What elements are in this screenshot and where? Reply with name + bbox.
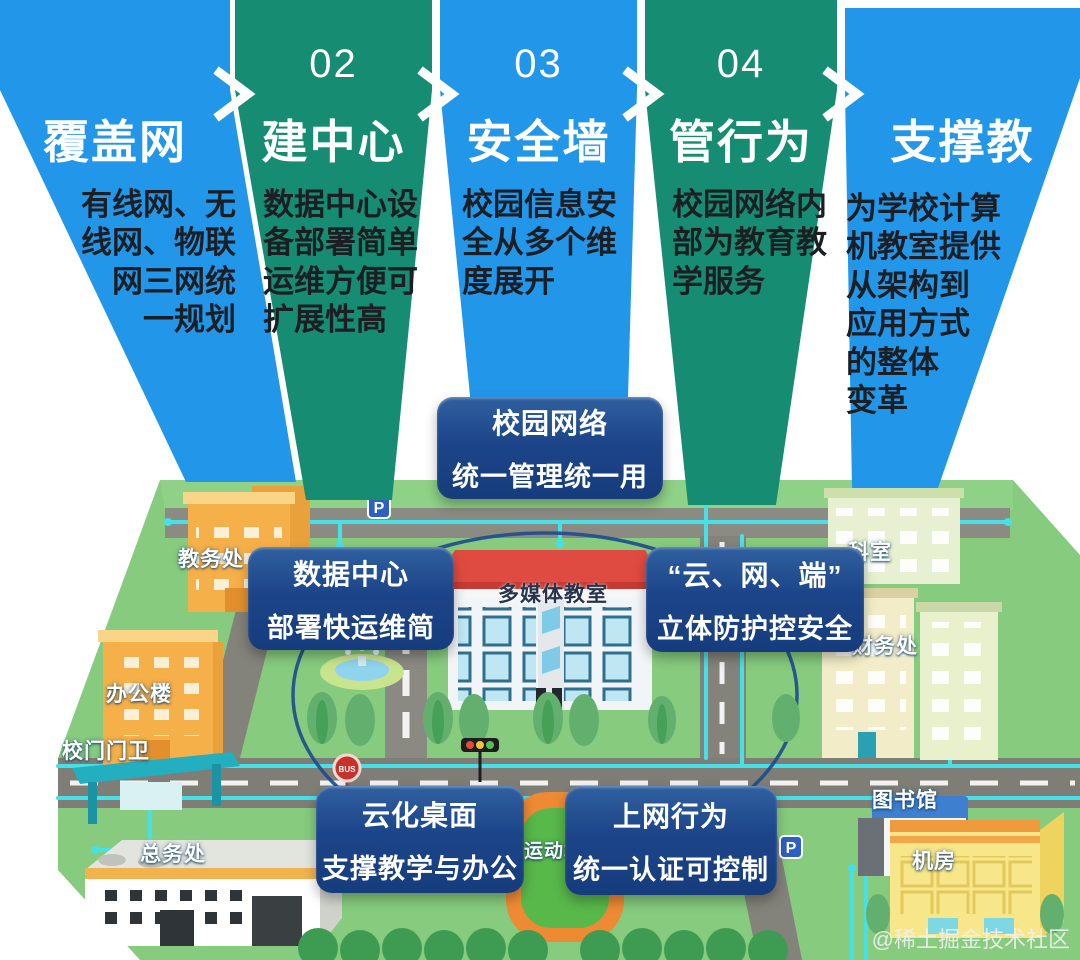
callout-data-center: 数据中心 部署快运维简 bbox=[248, 547, 454, 650]
callout-line1: “云、网、端” bbox=[667, 554, 842, 594]
step-desc-3: 校园信息安 全从多个维 度展开 bbox=[462, 186, 634, 301]
building-duomeiti bbox=[432, 550, 668, 710]
callout-line2: 统一认证可控制 bbox=[573, 848, 769, 887]
center-road bbox=[385, 640, 427, 758]
bus-icon: BUS bbox=[339, 765, 357, 774]
step-title-2: 建中心 bbox=[235, 106, 432, 172]
callout-line1: 云化桌面 bbox=[362, 794, 478, 834]
building-jifang bbox=[890, 812, 1064, 938]
callout-cloud-net-end: “云、网、端” 立体防护控安全 bbox=[646, 547, 864, 652]
parking-sign-bottom: P bbox=[780, 836, 802, 858]
map-label-bangonglou: 办公楼 bbox=[106, 678, 172, 708]
step-title-3: 安全墙 bbox=[440, 106, 637, 172]
step-desc-4: 校园网络内 部为教育教 学服务 bbox=[672, 186, 844, 301]
infographic-campus-network: BUS P P 02 03 04 bbox=[0, 0, 1080, 960]
map-label-xiaomen: 校门门卫 bbox=[62, 735, 150, 765]
map-label-duomeiti: 多媒体教室 bbox=[498, 578, 608, 608]
callout-cloud-desktop: 云化桌面 支撑教学与办公 bbox=[316, 786, 524, 893]
callout-line2: 支撑教学与办公 bbox=[322, 847, 518, 886]
map-label-zongwuchu: 总务处 bbox=[140, 838, 206, 868]
callout-line2: 统一管理统一用 bbox=[452, 455, 648, 494]
step-number-3: 03 bbox=[440, 42, 637, 87]
callout-line1: 数据中心 bbox=[293, 553, 409, 593]
callout-line2: 部署快运维简 bbox=[267, 606, 435, 645]
watermark: @稀土掘金技术社区 bbox=[872, 922, 1070, 954]
callout-net-behavior: 上网行为 统一认证可控制 bbox=[565, 786, 777, 895]
map-label-jiaowuchu: 教务处 bbox=[178, 543, 244, 573]
building-zongwuchu bbox=[85, 840, 342, 946]
callout-line2: 立体防护控安全 bbox=[657, 607, 853, 646]
step-desc-1: 有线网、无 线网、物联 网三网统 一规划 bbox=[40, 186, 236, 340]
step-number-4: 04 bbox=[645, 42, 837, 87]
callout-line1: 校园网络 bbox=[492, 402, 608, 442]
map-label-tushuguan: 图书馆 bbox=[872, 784, 938, 814]
step-title-4: 管行为 bbox=[645, 106, 837, 172]
step-number-2: 02 bbox=[235, 42, 432, 87]
parking-icon: P bbox=[786, 840, 797, 857]
step-desc-2: 数据中心设 备部署简单 运维方便可 扩展性高 bbox=[263, 186, 435, 340]
callout-line1: 上网行为 bbox=[613, 795, 729, 835]
step-desc-5: 为学校计算 机教室提供 从架构到 应用方式 的整体 变革 bbox=[846, 190, 1016, 421]
map-label-jifang: 机房 bbox=[912, 845, 956, 875]
callout-campus-network: 校园网络 统一管理统一用 bbox=[437, 397, 663, 499]
step-title-1: 覆盖网 bbox=[0, 106, 230, 172]
step-title-5: 支撑教 bbox=[845, 106, 1080, 172]
campus-map-illustration: BUS P P bbox=[0, 470, 1080, 960]
